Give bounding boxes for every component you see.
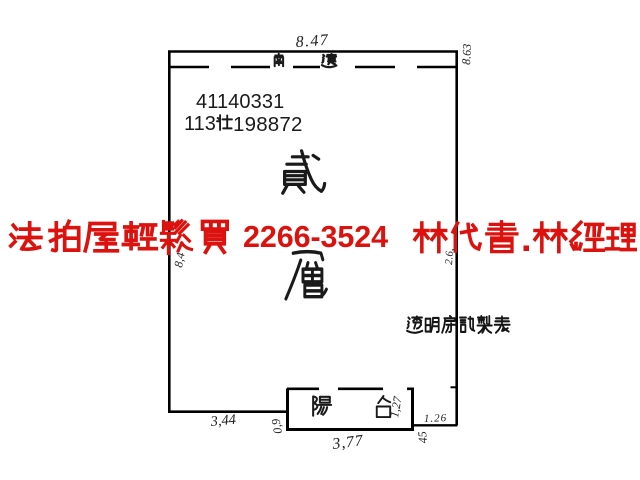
svg-text:8,4: 8,4 [171, 251, 187, 268]
svg-text:8.47: 8.47 [295, 32, 330, 51]
svg-text:3,77: 3,77 [330, 432, 364, 453]
svg-text:1.26: 1.26 [424, 412, 448, 425]
svg-text:0,9: 0,9 [269, 418, 285, 435]
svg-text:8.63: 8.63 [459, 43, 474, 65]
svg-text:2.6,: 2.6, [443, 248, 456, 266]
svg-text:1,27: 1,27 [387, 394, 405, 418]
svg-text:3,44: 3,44 [209, 412, 237, 430]
svg-text:45: 45 [415, 431, 430, 444]
